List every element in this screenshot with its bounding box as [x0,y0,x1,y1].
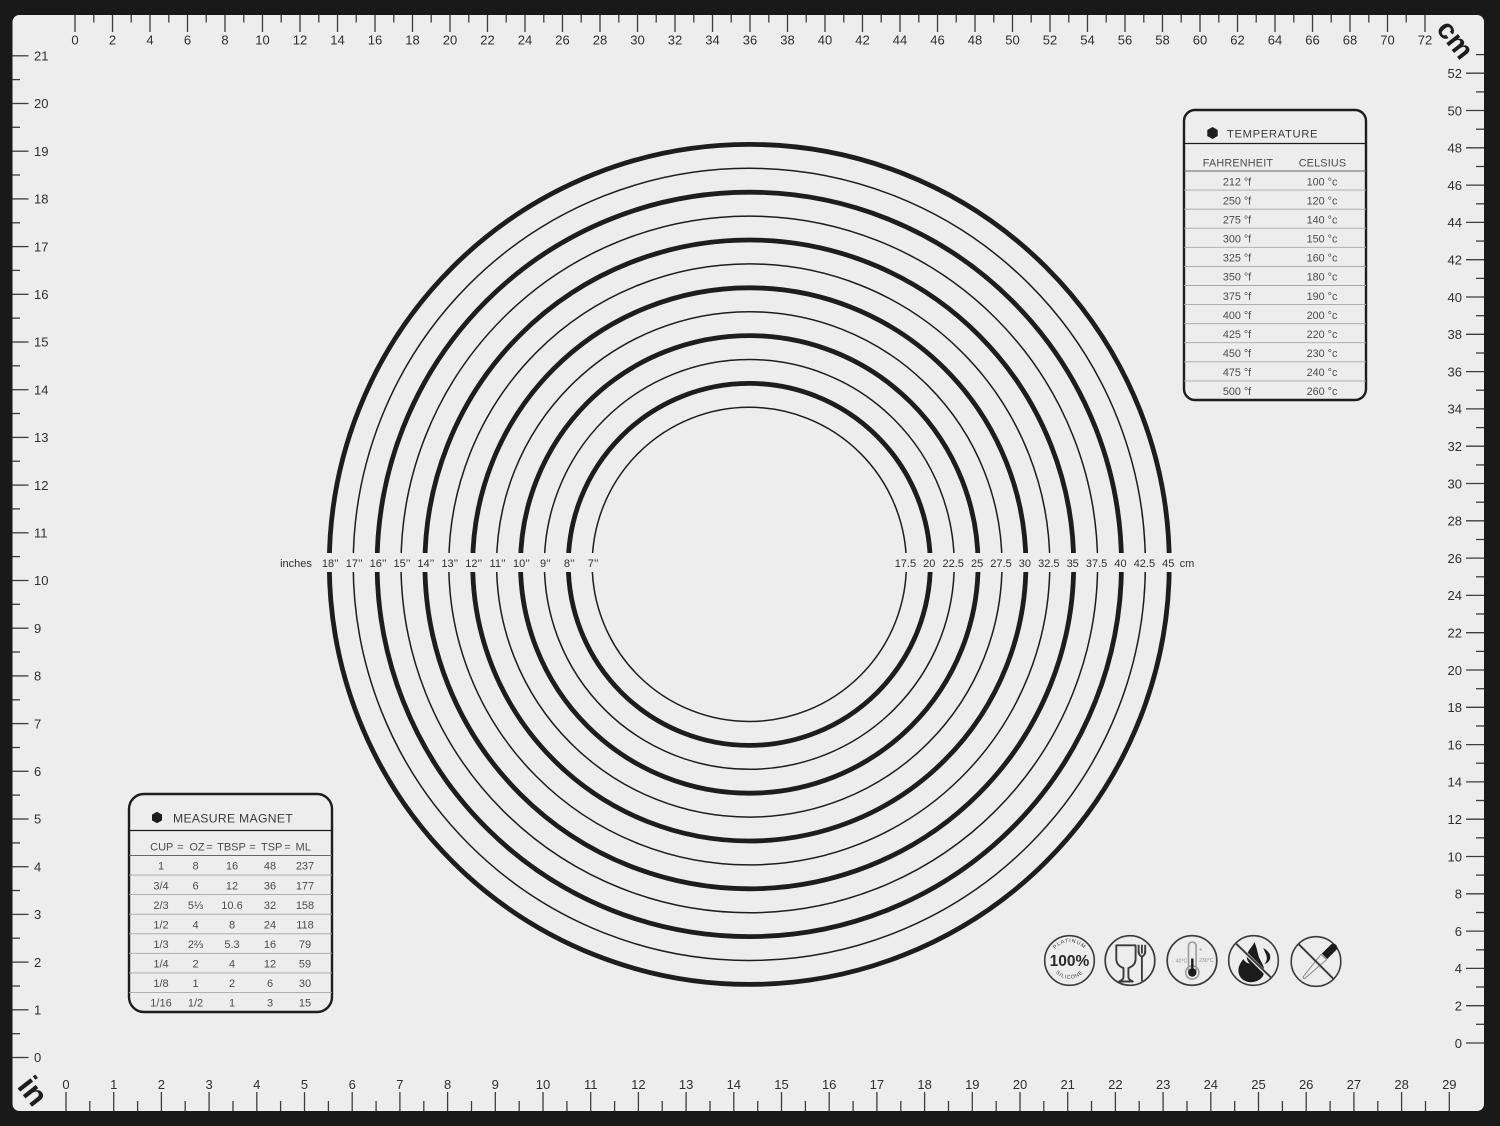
svg-text:9’’: 9’’ [540,558,551,570]
svg-text:160 °c: 160 °c [1307,253,1338,265]
svg-text:59: 59 [299,959,311,971]
svg-text:2: 2 [109,33,116,48]
svg-text:32: 32 [264,900,276,912]
svg-text:1/8: 1/8 [153,978,168,990]
svg-text:0: 0 [1455,1036,1462,1051]
svg-text:18: 18 [917,1077,931,1092]
svg-text:7: 7 [34,716,41,731]
svg-text:20: 20 [1448,663,1462,678]
svg-text:38: 38 [1448,327,1462,342]
svg-text:6: 6 [192,880,198,892]
svg-text:48: 48 [968,33,982,48]
svg-text:8: 8 [192,861,198,873]
svg-text:10’’: 10’’ [513,558,530,570]
svg-text:1: 1 [229,998,235,1010]
svg-text:118: 118 [296,919,314,931]
svg-text:3: 3 [205,1077,212,1092]
svg-text:13: 13 [679,1077,693,1092]
svg-text:25: 25 [971,558,983,570]
svg-text:36: 36 [1448,364,1462,379]
svg-text:24: 24 [1204,1077,1218,1092]
svg-text:inches: inches [280,558,312,570]
svg-text:475 °f: 475 °f [1223,367,1252,379]
svg-text:52: 52 [1448,66,1462,81]
svg-text:19: 19 [965,1077,979,1092]
svg-text:46: 46 [930,33,944,48]
svg-text:2: 2 [192,959,198,971]
svg-text:23: 23 [1156,1077,1170,1092]
svg-text:32: 32 [1448,439,1462,454]
svg-text:180 °c: 180 °c [1307,272,1338,284]
svg-text:18: 18 [1448,700,1462,715]
svg-text:1: 1 [158,861,164,873]
svg-text:52: 52 [1043,33,1057,48]
svg-text:62: 62 [1230,33,1244,48]
svg-text:17.5: 17.5 [895,558,916,570]
svg-text:OZ: OZ [189,842,205,854]
svg-text:10.6: 10.6 [221,900,242,912]
svg-text:1: 1 [34,1003,41,1018]
svg-text:36: 36 [743,33,757,48]
svg-text:7’’: 7’’ [588,558,599,570]
svg-text:=: = [284,842,290,854]
svg-text:2: 2 [1455,999,1462,1014]
svg-text:5: 5 [301,1077,308,1092]
svg-text:12: 12 [264,959,276,971]
svg-text:12: 12 [1448,812,1462,827]
svg-text:40: 40 [1114,558,1126,570]
svg-text:16: 16 [34,287,48,302]
svg-text:28: 28 [1448,514,1462,529]
svg-text:16: 16 [226,861,238,873]
svg-text:TSP: TSP [261,842,282,854]
svg-text:15: 15 [34,335,48,350]
svg-text:16’’: 16’’ [370,558,387,570]
svg-text:158: 158 [296,900,314,912]
svg-text:7: 7 [396,1077,403,1092]
svg-text:150 °c: 150 °c [1307,234,1338,246]
svg-text:8: 8 [444,1077,451,1092]
svg-text:375 °f: 375 °f [1223,291,1252,303]
svg-text:24: 24 [1448,588,1462,603]
svg-text:6: 6 [267,978,273,990]
svg-text:12: 12 [226,880,238,892]
svg-text:+: + [1199,947,1203,954]
svg-text:20: 20 [923,558,935,570]
svg-text:6: 6 [349,1077,356,1092]
svg-text:30: 30 [1448,476,1462,491]
svg-text:3/4: 3/4 [153,880,168,892]
svg-text:21: 21 [34,49,48,64]
svg-text:37.5: 37.5 [1086,558,1107,570]
svg-text:230°C: 230°C [1199,958,1214,964]
svg-text:22: 22 [1448,626,1462,641]
svg-text:20: 20 [34,96,48,111]
svg-text:4: 4 [229,959,235,971]
svg-text:38: 38 [780,33,794,48]
svg-text:48: 48 [1448,141,1462,156]
svg-text:500 °f: 500 °f [1223,386,1252,398]
svg-text:18’’: 18’’ [322,558,339,570]
svg-text:4: 4 [192,919,198,931]
svg-text:5.3: 5.3 [224,939,239,951]
svg-text:54: 54 [1080,33,1094,48]
svg-text:4: 4 [253,1077,260,1092]
svg-text:14: 14 [330,33,344,48]
svg-text:1: 1 [192,978,198,990]
svg-text:11’’: 11’’ [490,558,506,570]
svg-text:0: 0 [62,1077,69,1092]
svg-text:260 °c: 260 °c [1307,386,1338,398]
svg-text:FAHRENHEIT: FAHRENHEIT [1203,158,1274,170]
svg-text:1/4: 1/4 [153,959,168,971]
svg-text:6: 6 [184,33,191,48]
svg-text:- 40°C: - 40°C [1173,959,1188,965]
svg-text:40: 40 [1448,290,1462,305]
svg-text:=: = [177,842,183,854]
svg-text:68: 68 [1343,33,1357,48]
svg-text:28: 28 [593,33,607,48]
svg-text:64: 64 [1268,33,1282,48]
svg-text:22: 22 [480,33,494,48]
svg-text:1: 1 [110,1077,117,1092]
svg-text:50: 50 [1448,103,1462,118]
svg-text:1/2: 1/2 [153,919,168,931]
svg-text:5: 5 [34,812,41,827]
svg-text:3: 3 [34,907,41,922]
svg-text:32.5: 32.5 [1038,558,1059,570]
svg-text:15: 15 [299,998,311,1010]
svg-text:250 °f: 250 °f [1223,195,1252,207]
svg-text:11: 11 [34,526,48,541]
svg-text:1/3: 1/3 [153,939,168,951]
svg-text:42: 42 [855,33,869,48]
svg-text:100%: 100% [1050,953,1090,970]
svg-text:18: 18 [34,192,48,207]
svg-text:16: 16 [264,939,276,951]
svg-text:400 °f: 400 °f [1223,310,1252,322]
svg-text:79: 79 [299,939,311,951]
svg-text:11: 11 [584,1077,598,1092]
svg-text:10: 10 [1448,849,1462,864]
svg-text:10: 10 [255,33,269,48]
svg-text:275 °f: 275 °f [1223,215,1252,227]
svg-text:212 °f: 212 °f [1223,176,1252,188]
svg-text:100 °c: 100 °c [1307,176,1338,188]
svg-text:325 °f: 325 °f [1223,253,1252,265]
svg-text:140 °c: 140 °c [1307,215,1338,227]
svg-text:20: 20 [1013,1077,1027,1092]
svg-text:8: 8 [229,919,235,931]
svg-text:12: 12 [34,478,48,493]
svg-text:8: 8 [34,669,41,684]
svg-text:cm: cm [1180,558,1195,570]
svg-text:14’’: 14’’ [417,558,434,570]
svg-text:=: = [249,842,255,854]
svg-text:24: 24 [264,919,276,931]
svg-text:30: 30 [630,33,644,48]
svg-text:ML: ML [296,842,311,854]
svg-text:2: 2 [34,955,41,970]
svg-text:230 °c: 230 °c [1307,348,1338,360]
svg-text:10: 10 [536,1077,550,1092]
svg-text:16: 16 [822,1077,836,1092]
svg-text:15: 15 [774,1077,788,1092]
svg-text:25: 25 [1251,1077,1265,1092]
svg-text:70: 70 [1380,33,1394,48]
svg-text:40: 40 [818,33,832,48]
svg-text:20: 20 [443,33,457,48]
svg-text:28: 28 [1394,1077,1408,1092]
svg-text:32: 32 [668,33,682,48]
svg-text:44: 44 [1448,215,1462,230]
svg-text:2: 2 [158,1077,165,1092]
svg-text:9: 9 [34,621,41,636]
svg-text:=: = [206,842,212,854]
svg-text:13: 13 [34,430,48,445]
svg-text:58: 58 [1155,33,1169,48]
svg-text:48: 48 [264,861,276,873]
svg-text:0: 0 [34,1050,41,1065]
svg-text:26: 26 [555,33,569,48]
svg-text:220 °c: 220 °c [1307,329,1338,341]
svg-text:50: 50 [1005,33,1019,48]
svg-text:TEMPERATURE: TEMPERATURE [1227,129,1318,141]
svg-text:45: 45 [1162,558,1174,570]
svg-text:19: 19 [34,144,48,159]
svg-text:16: 16 [368,33,382,48]
svg-text:1/2: 1/2 [188,998,203,1010]
svg-text:60: 60 [1193,33,1207,48]
svg-text:450 °f: 450 °f [1223,348,1252,360]
svg-text:5⅓: 5⅓ [188,900,203,912]
svg-text:8: 8 [221,33,228,48]
svg-text:1/16: 1/16 [150,998,171,1010]
svg-text:36: 36 [264,880,276,892]
svg-text:2: 2 [229,978,235,990]
svg-text:TBSP: TBSP [217,842,246,854]
svg-text:2/3: 2/3 [153,900,168,912]
svg-text:12: 12 [293,33,307,48]
svg-text:240 °c: 240 °c [1307,367,1338,379]
svg-text:425 °f: 425 °f [1223,329,1252,341]
svg-text:200 °c: 200 °c [1307,310,1338,322]
svg-text:14: 14 [727,1077,741,1092]
svg-text:300 °f: 300 °f [1223,234,1252,246]
svg-text:27: 27 [1347,1077,1361,1092]
svg-text:21: 21 [1060,1077,1074,1092]
svg-text:4: 4 [146,33,153,48]
svg-text:42: 42 [1448,253,1462,268]
svg-text:18: 18 [405,33,419,48]
svg-text:237: 237 [296,861,314,873]
svg-text:350 °f: 350 °f [1223,272,1252,284]
svg-text:44: 44 [893,33,907,48]
svg-text:13’’: 13’’ [441,558,458,570]
svg-text:29: 29 [1442,1077,1456,1092]
svg-text:14: 14 [34,382,48,397]
svg-text:22.5: 22.5 [942,558,963,570]
svg-text:0: 0 [71,33,78,48]
svg-text:4: 4 [1455,961,1462,976]
svg-text:8’’: 8’’ [564,558,575,570]
svg-text:3: 3 [267,998,273,1010]
svg-text:2⅔: 2⅔ [188,939,203,951]
svg-text:35: 35 [1067,558,1079,570]
svg-text:24: 24 [518,33,532,48]
svg-text:CELSIUS: CELSIUS [1299,158,1347,170]
svg-text:34: 34 [1448,402,1462,417]
svg-text:16: 16 [1448,737,1462,752]
svg-text:46: 46 [1448,178,1462,193]
svg-text:6: 6 [34,764,41,779]
svg-text:8: 8 [1455,887,1462,902]
svg-text:27.5: 27.5 [990,558,1011,570]
svg-text:CUP: CUP [150,842,173,854]
svg-text:10: 10 [34,573,48,588]
svg-text:MEASURE MAGNET: MEASURE MAGNET [173,812,293,826]
svg-text:14: 14 [1448,775,1462,790]
svg-text:190 °c: 190 °c [1307,291,1338,303]
svg-text:15’’: 15’’ [394,558,411,570]
svg-text:4: 4 [34,859,41,874]
svg-text:9: 9 [492,1077,499,1092]
svg-text:17: 17 [870,1077,884,1092]
svg-text:22: 22 [1108,1077,1122,1092]
svg-text:120 °c: 120 °c [1307,195,1338,207]
svg-text:42.5: 42.5 [1134,558,1155,570]
svg-text:26: 26 [1299,1077,1313,1092]
svg-text:12’’: 12’’ [465,558,482,570]
svg-text:12: 12 [631,1077,645,1092]
svg-text:34: 34 [705,33,719,48]
svg-text:30: 30 [299,978,311,990]
svg-text:26: 26 [1448,551,1462,566]
svg-text:6: 6 [1455,924,1462,939]
svg-text:56: 56 [1118,33,1132,48]
svg-text:17’’: 17’’ [346,558,363,570]
svg-text:66: 66 [1305,33,1319,48]
svg-text:17: 17 [34,239,48,254]
svg-text:177: 177 [296,880,314,892]
svg-text:30: 30 [1019,558,1031,570]
svg-text:72: 72 [1418,33,1432,48]
